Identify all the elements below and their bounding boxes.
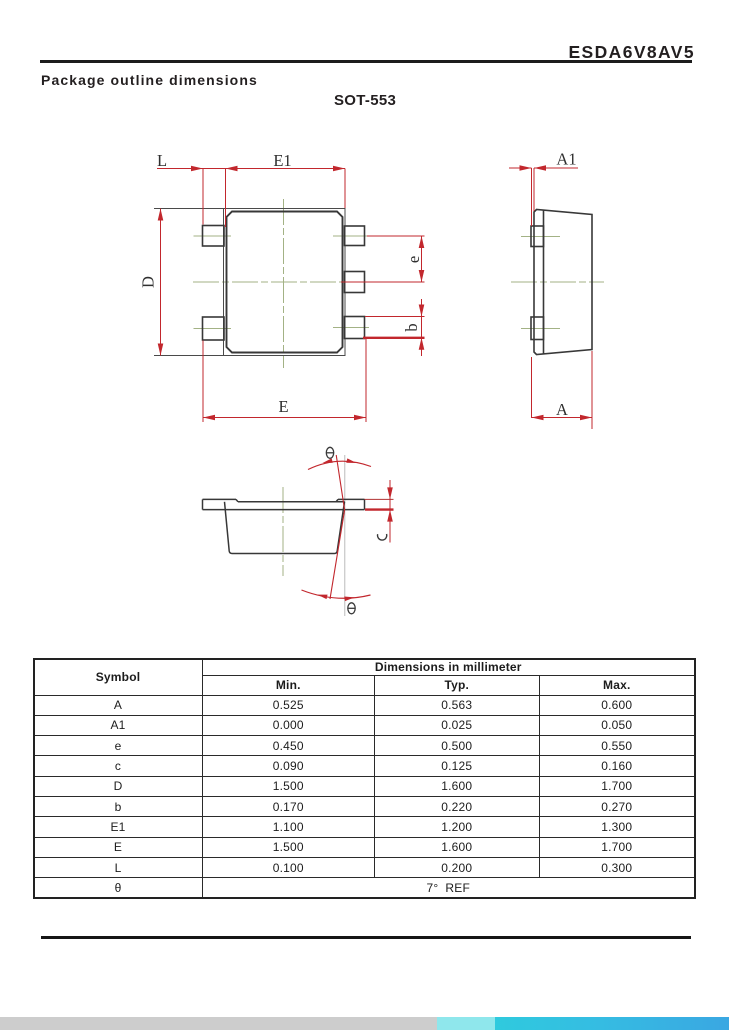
svg-text:e: e [404, 256, 423, 263]
svg-text:E: E [278, 397, 288, 416]
svg-text:L: L [157, 151, 167, 170]
svg-text:E1: E1 [273, 151, 291, 170]
svg-text:D: D [139, 276, 158, 288]
svg-text:A1: A1 [556, 150, 576, 169]
svg-text:b: b [402, 323, 421, 331]
svg-text:A: A [556, 400, 568, 419]
